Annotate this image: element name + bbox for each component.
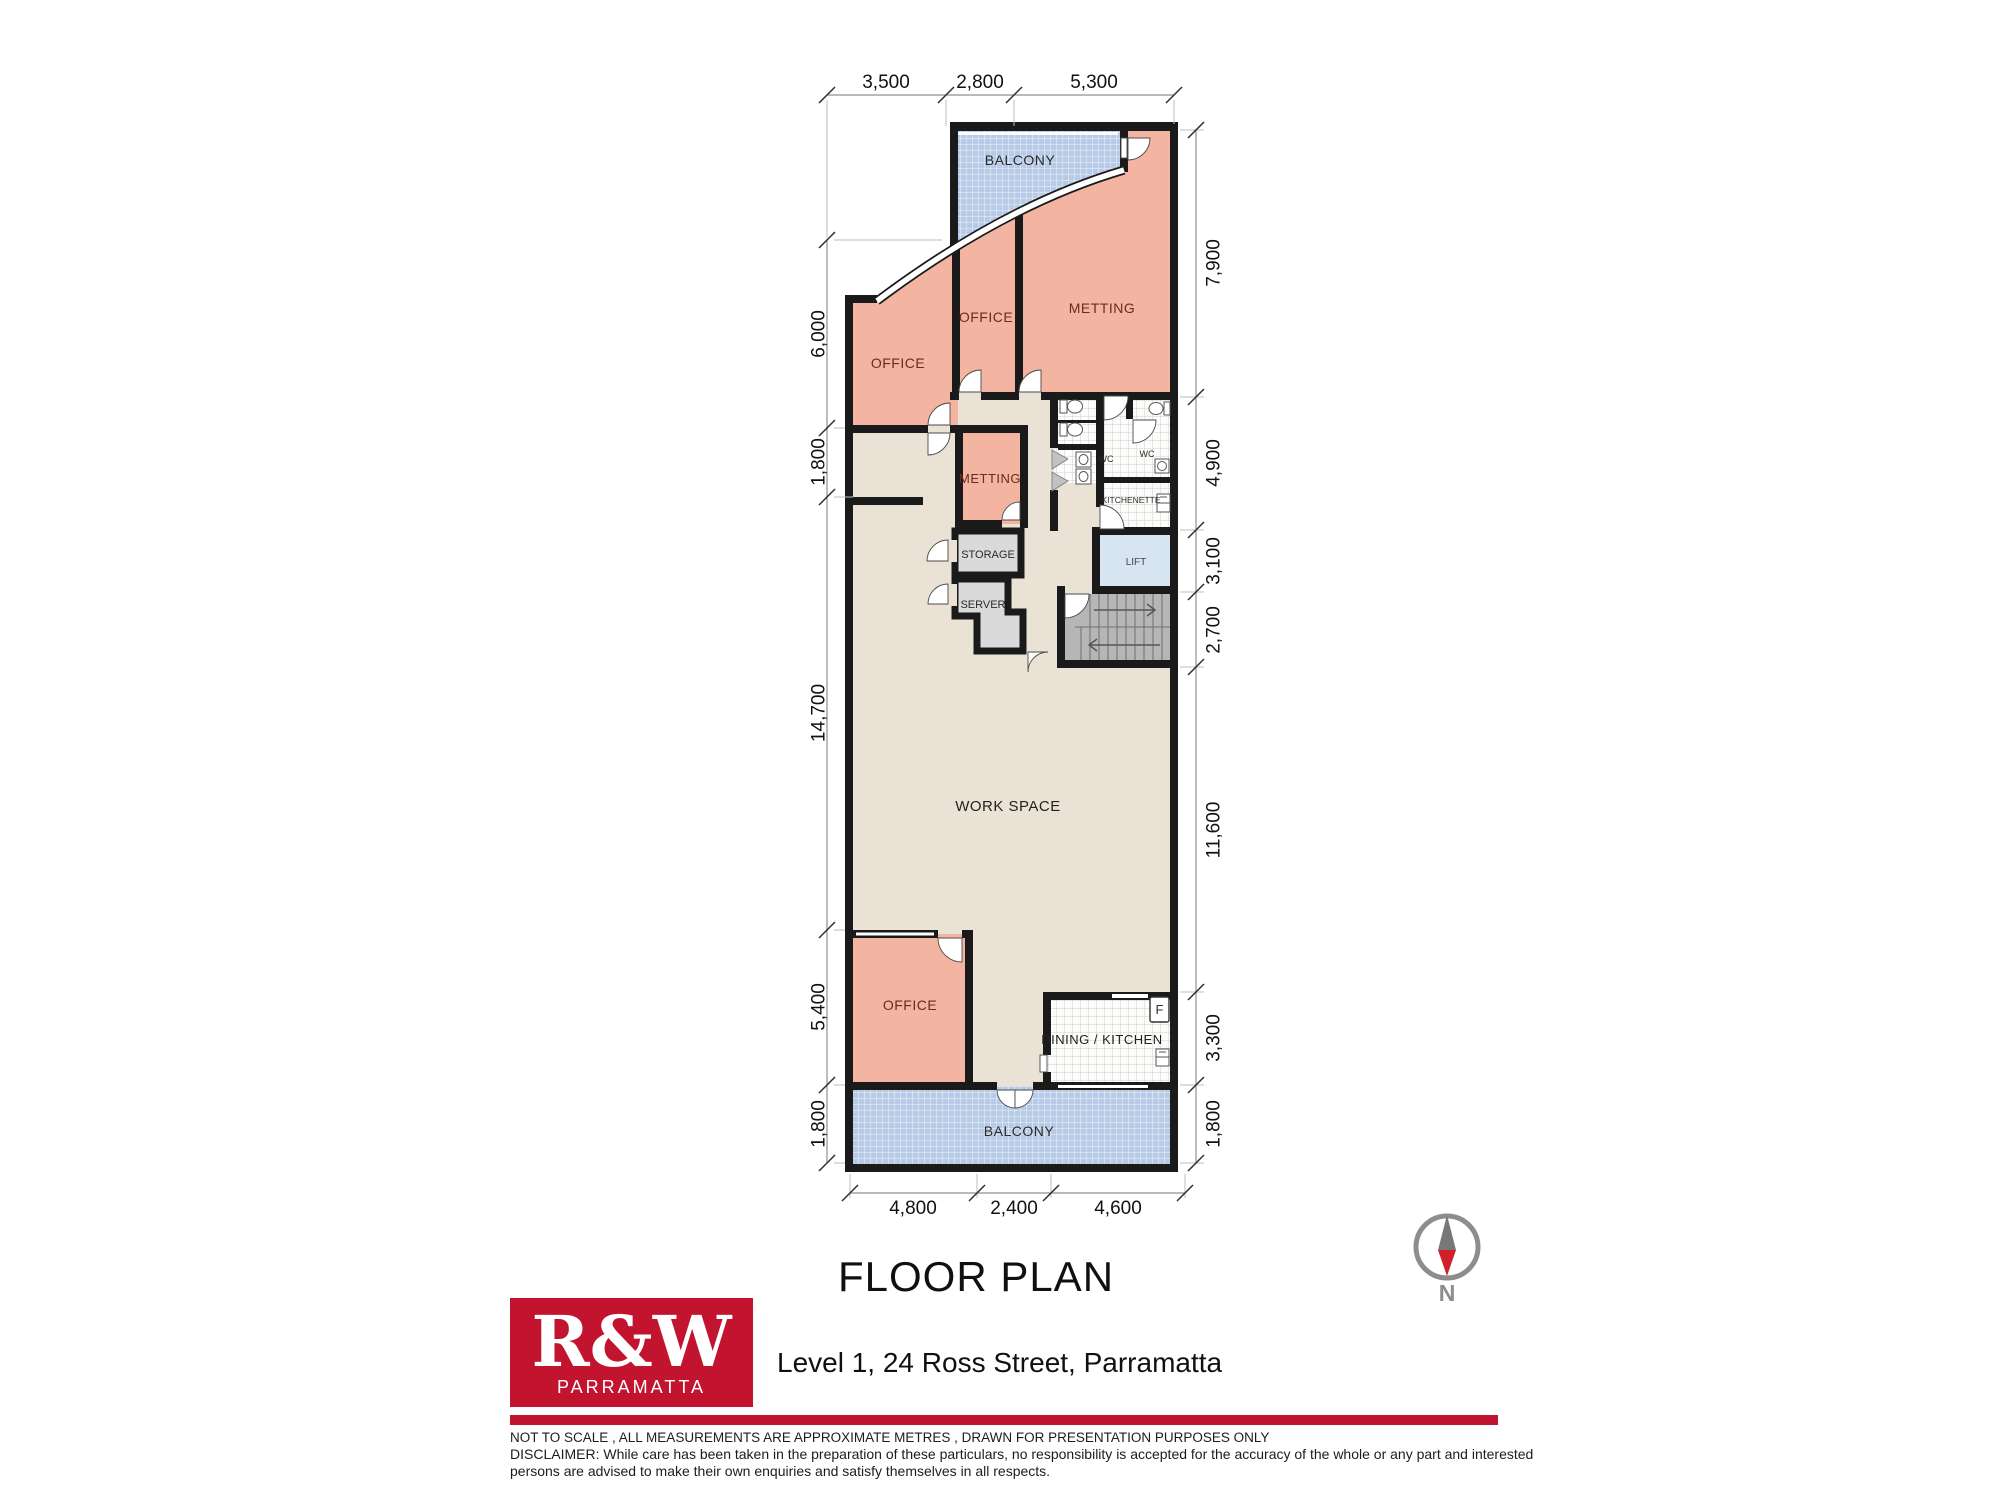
dim-right-7: 1,800 (1204, 1100, 1225, 1148)
dining-door-mark (1040, 1055, 1047, 1072)
dim-right-3: 3,100 (1204, 537, 1225, 585)
balcony-top-door-leaf (1121, 138, 1127, 158)
room-label-office-top-left: OFFICE (871, 355, 925, 371)
toilet-tank (1164, 402, 1170, 415)
dim-bottom-2: 2,400 (990, 1198, 1038, 1219)
dim-left-2: 1,800 (809, 438, 830, 486)
room-label-kitchenette: KITCHENETTE (1101, 495, 1160, 505)
north-compass-icon: N (1416, 1215, 1478, 1306)
dim-bottom-1: 4,800 (889, 1198, 937, 1219)
logo-suburb-text: PARRAMATTA (557, 1377, 706, 1398)
dim-top-3: 5,300 (1070, 72, 1118, 93)
disclaimer-line-2: persons are advised to make their own en… (510, 1463, 1510, 1480)
toilet-tank (1060, 423, 1067, 436)
toilet-bowl (1149, 403, 1163, 415)
logo-brand-text: R&W (532, 1309, 732, 1376)
dim-left-3: 14,700 (809, 684, 830, 742)
dim-left-1: 6,000 (809, 310, 830, 358)
room-label-meeting-top: METTING (1069, 300, 1136, 316)
room-label-balcony-bottom: BALCONY (984, 1123, 1055, 1139)
room-label-lift: LIFT (1126, 557, 1147, 568)
room-label-wc-right: WC (1140, 449, 1155, 459)
dim-left-5: 1,800 (809, 1100, 830, 1148)
room-label-balcony-top: BALCONY (985, 152, 1056, 168)
dim-right-1: 7,900 (1204, 239, 1225, 287)
room-label-wc-left: WC (1099, 454, 1114, 464)
dim-left-4: 5,400 (809, 983, 830, 1031)
fridge-label: F (1156, 1002, 1164, 1017)
room-label-dining-kitchen: DINING / KITCHEN (1041, 1032, 1162, 1047)
dim-right-5: 11,600 (1204, 802, 1225, 859)
dim-top-2: 2,800 (956, 72, 1004, 93)
compass-north-label: N (1439, 1280, 1456, 1306)
brand-logo: R&W PARRAMATTA (510, 1298, 753, 1407)
room-label-office-top-mid: OFFICE (959, 309, 1013, 325)
dim-right-2: 4,900 (1204, 439, 1225, 487)
room-label-meeting-small: METTING (959, 471, 1021, 486)
toilet-tank (1060, 400, 1067, 413)
footer-scale-note: NOT TO SCALE , ALL MEASUREMENTS ARE APPR… (510, 1429, 1510, 1446)
toilet-bowl (1068, 400, 1083, 413)
disclaimer-line-1: DISCLAIMER: While care has been taken in… (510, 1446, 1510, 1463)
dim-right-6: 3,300 (1204, 1014, 1225, 1062)
dim-top-1: 3,500 (862, 72, 910, 93)
dim-right-4: 2,700 (1204, 606, 1225, 654)
dim-bottom-3: 4,600 (1094, 1198, 1142, 1219)
room-label-storage: STORAGE (961, 549, 1015, 561)
brand-red-bar (510, 1415, 1498, 1425)
property-address: Level 1, 24 Ross Street, Parramatta (777, 1347, 1222, 1379)
room-label-office-bottom: OFFICE (883, 997, 937, 1013)
room-label-server: SERVER (960, 599, 1005, 611)
room-label-work-space: WORK SPACE (955, 798, 1061, 815)
toilet-bowl (1068, 423, 1083, 436)
footer-disclaimer: NOT TO SCALE , ALL MEASUREMENTS ARE APPR… (510, 1429, 1510, 1480)
page-title: FLOOR PLAN (838, 1253, 1114, 1301)
